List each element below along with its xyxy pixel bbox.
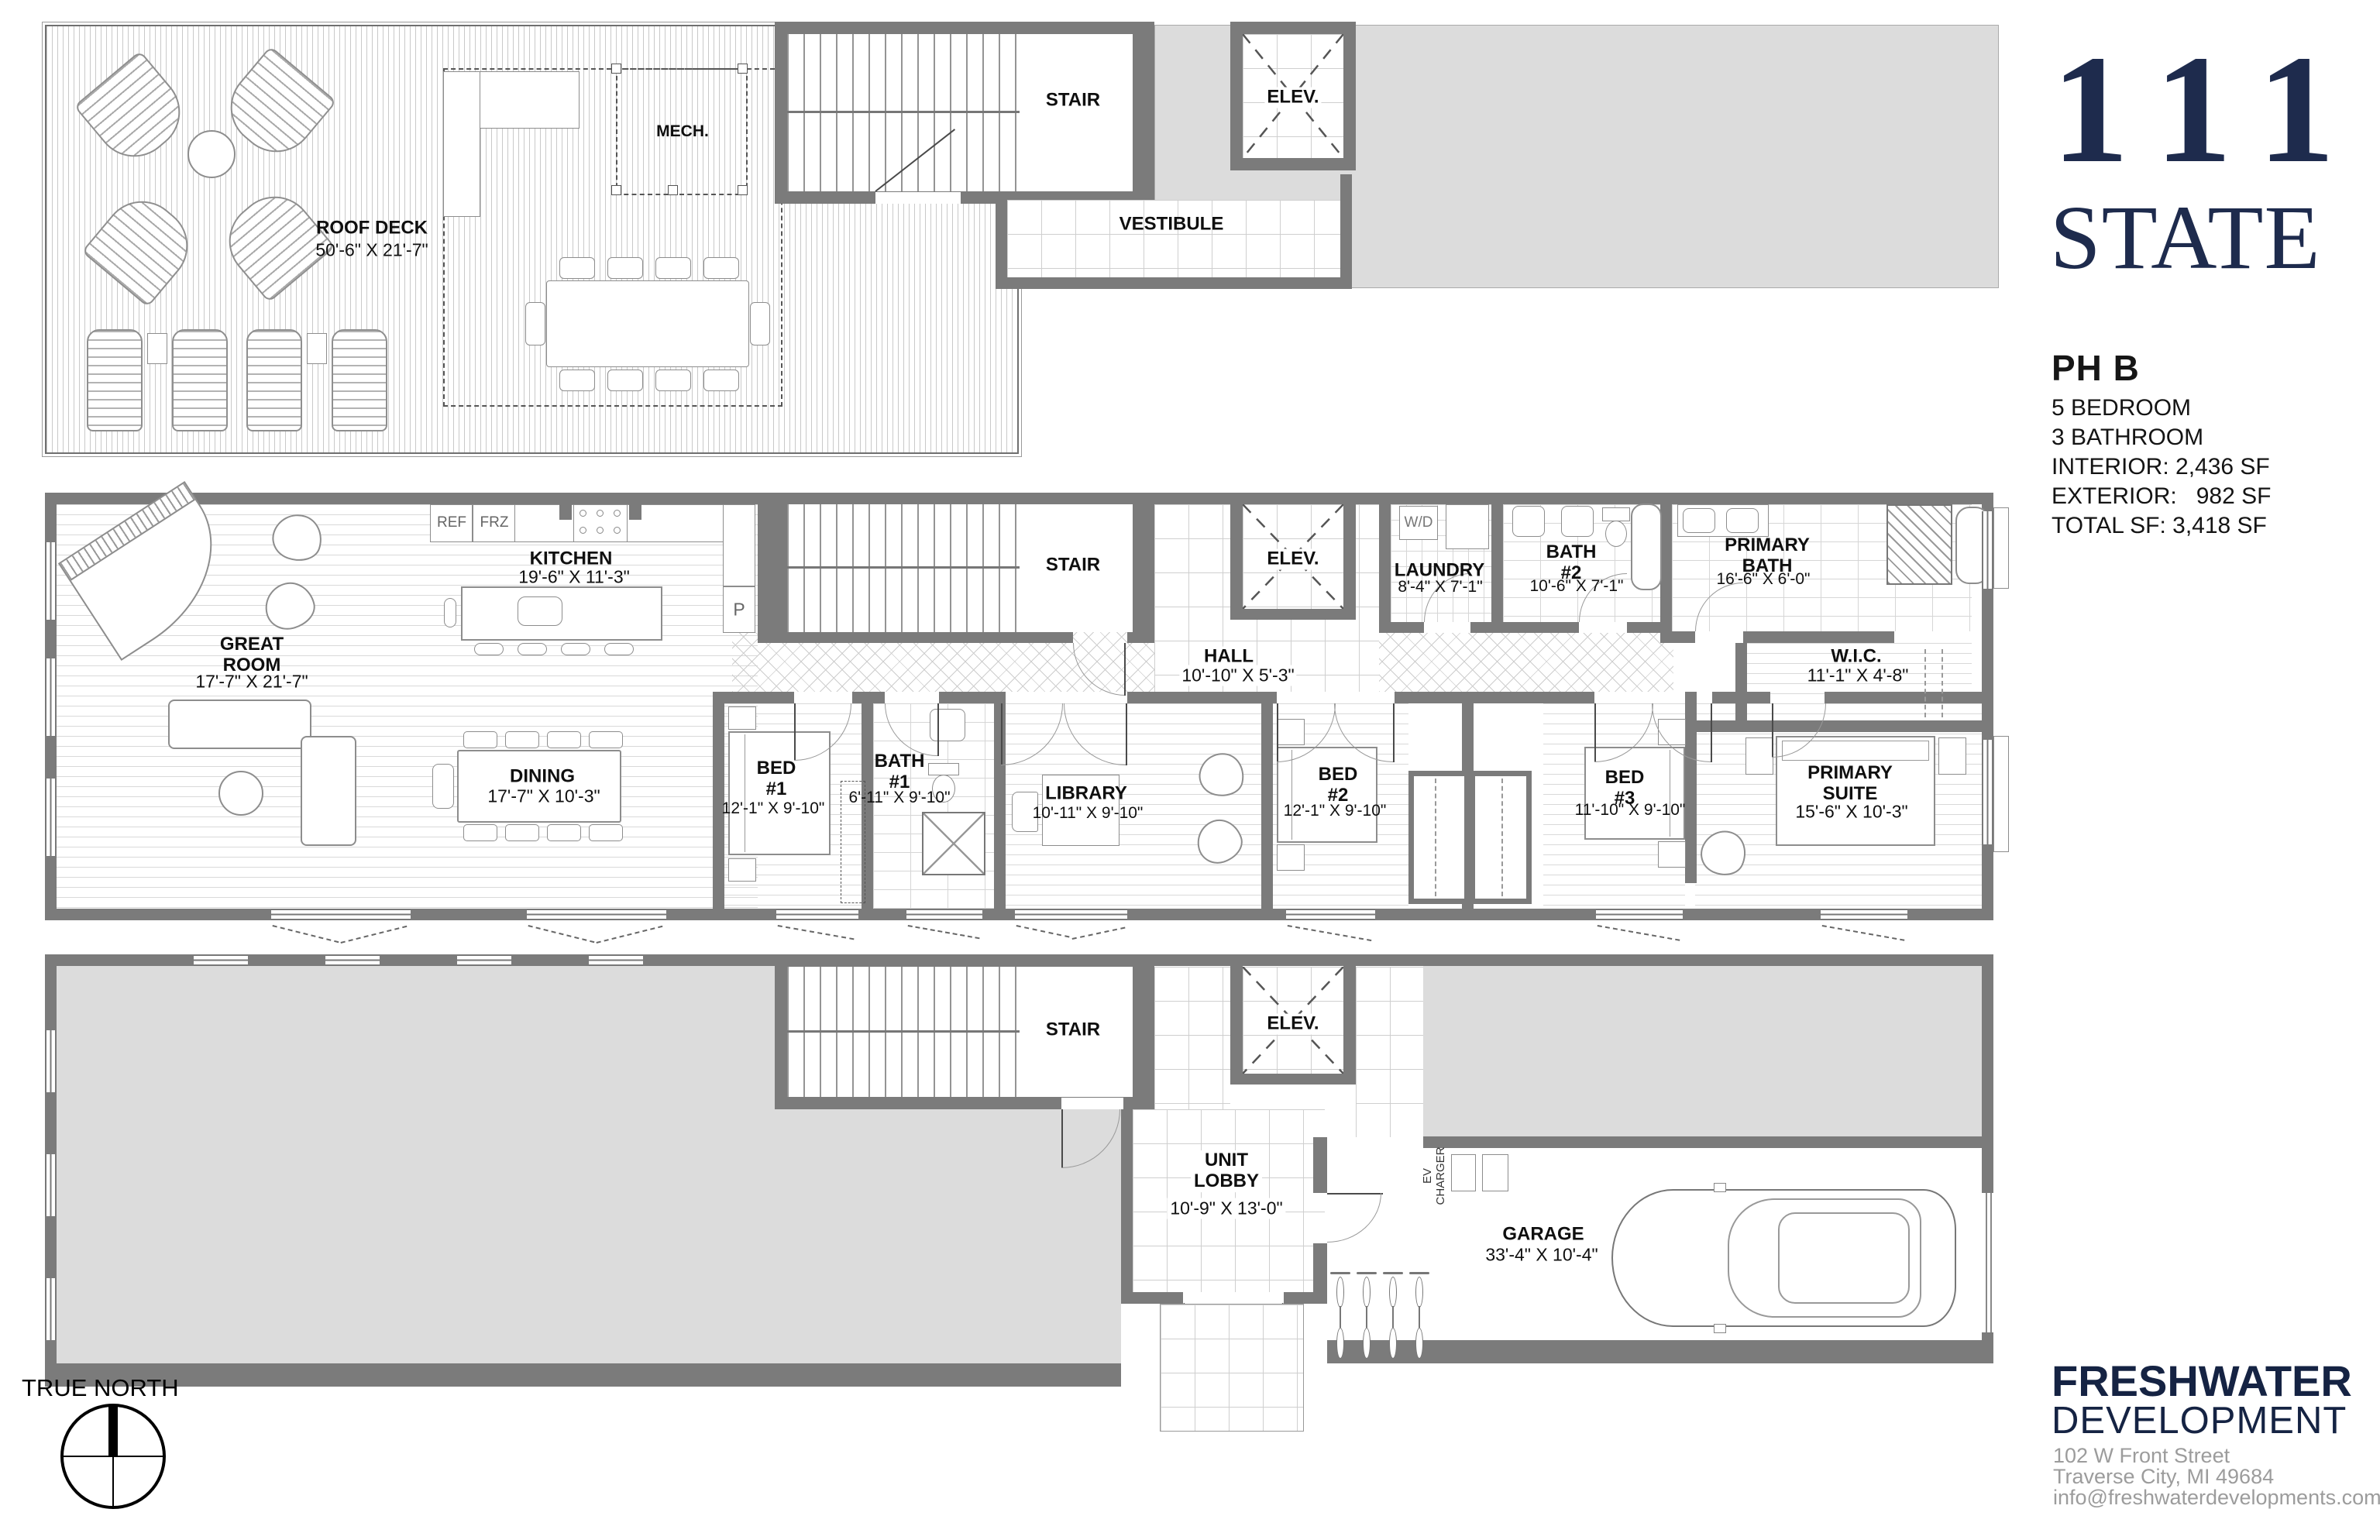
window [1982,511,1993,589]
deck-dining-chair [607,257,643,279]
car [1611,1189,1956,1327]
burner [597,510,604,517]
casement-swing [1288,925,1372,941]
deck-dining-chair [559,257,595,279]
burner [614,527,621,534]
deck-dining-chair [655,370,691,391]
bay-window [1993,736,2009,852]
bicycle [1356,1272,1377,1360]
nightstand [1658,841,1686,868]
mech-label: MECH. [656,122,709,141]
wic-label: W.I.C. [1831,647,1881,668]
deck-dining-table [546,280,749,367]
burner [597,527,604,534]
compass-north-bar [108,1405,118,1456]
dining-dims: 17'-7" X 10'-3" [487,786,600,807]
deck-dining-chair [703,257,739,279]
casement-swing [1072,926,1126,940]
entry-door-opening [1183,1292,1284,1304]
window [1596,909,1683,920]
wall-segment [1121,1109,1133,1292]
lobby-floor [1154,967,1230,1109]
window [1821,909,1907,920]
bed2-dims: 12'-1" X 9'-10" [1284,802,1387,820]
sink [1512,506,1545,537]
vestibule-floor [1007,200,1340,277]
bicycle [1408,1272,1430,1360]
window [45,779,57,856]
garage-dims: 33'-4" X 10'-4" [1485,1245,1598,1266]
post [668,185,678,195]
spec-line: INTERIOR: 2,436 SF [2052,452,2270,482]
library-label: LIBRARY [1045,784,1127,805]
garage-door-line [1986,1193,1987,1332]
hall-dims: 10'-10" X 5'-3" [1179,665,1296,686]
laundry-door-opening [1424,622,1470,633]
lobby-floor [1356,967,1423,1137]
nightstand [1938,737,1966,775]
window [271,909,411,920]
hall-label: HALL [1202,647,1256,668]
roof-deck-label: ROOF DECK [316,218,428,239]
wall-segment [1313,1243,1327,1292]
developer-name-line2: DEVELOPMENT [2052,1399,2347,1442]
elevator-wall [1343,493,1356,620]
nightstand [728,858,756,882]
post [738,64,748,74]
stair-rail [787,111,1020,113]
closet-rod [1941,649,1943,717]
primary-bath-door-opening [1695,631,1743,643]
nightstand [1745,737,1773,775]
deck-dining-chair [559,370,595,391]
dining-chair [463,824,497,841]
stair-label: STAIR [1046,1020,1100,1041]
elevator-wall [1230,609,1356,620]
toilet [1602,507,1630,521]
wall-segment [996,277,1352,289]
stair-rail [787,566,1020,569]
primary-suite-dims: 15'-6" X 10'-3" [1795,802,1907,823]
unit-lobby-dims: 10'-9" X 13'-0" [1167,1198,1285,1219]
elevator-label: ELEV. [1264,549,1321,570]
dining-chair [589,824,623,841]
bathtub [1631,504,1662,590]
nightstand [728,706,756,730]
bed1-dims: 12'-1" X 9'-10" [722,799,825,818]
deck-dining-chair [655,257,691,279]
elevator-label: ELEV. [1264,1014,1321,1035]
dining-chair [547,824,581,841]
adjacent-space [1423,966,1982,1136]
compass-label: TRUE NORTH [22,1374,179,1402]
casement-swing [597,926,663,944]
ev-charger-unit [1451,1154,1476,1191]
window [325,954,380,966]
wall-segment [1735,643,1747,732]
elevator-wall [1343,954,1356,1085]
stair-wall [1127,632,1154,643]
window [45,1154,57,1216]
bay-window [1993,507,2009,589]
wall-segment [1127,692,1277,703]
stair-wall [758,493,787,643]
sink [1683,508,1715,533]
wall-segment [1825,692,1982,703]
bath2-door-opening [1579,622,1627,633]
deck-dining-chair [750,302,770,345]
window [527,909,666,920]
toilet [928,763,959,775]
wall-bottom [45,1363,1121,1387]
elevator-wall [1230,1074,1356,1085]
door-leaf [1126,703,1127,765]
wall-segment [1672,720,1982,732]
bicycle [1329,1272,1351,1360]
ev-charger-unit [1482,1154,1508,1191]
casement-swing [273,925,339,943]
unit-lobby-label: UNIT LOBBY [1191,1150,1262,1192]
wall-segment [1261,692,1273,920]
frz-label: FRZ [480,514,509,531]
stair-label: STAIR [1046,555,1100,576]
window [1982,740,1993,844]
coffee-table [218,771,263,816]
wall-right [1982,1332,1993,1363]
closet-rod [1501,779,1503,896]
developer-email: info@freshwaterdevelopments.com [2053,1487,2380,1508]
tall-cabinet [723,504,755,586]
primary-suite-label: PRIMARY SUITE [1807,763,1893,805]
garage-top-wall [1423,1136,1993,1148]
window [1015,909,1127,920]
shower [1886,504,1952,585]
stair-door-opening [1061,1098,1123,1109]
dining-label: DINING [510,767,575,788]
window [1286,909,1375,920]
closet-rod [1435,779,1436,896]
deck-dining-chair [525,302,545,345]
stool [518,643,547,655]
stair-rail [787,1030,1020,1033]
unit-name: PH B [2052,347,2140,389]
casement-swing [1016,925,1070,938]
wall-segment [1379,504,1391,633]
closet-divider [1464,771,1475,904]
compass-south-line [112,1456,114,1507]
burner [580,527,586,534]
bicycle [1382,1272,1404,1360]
kitchen-dims: 19'-6" X 11'-3" [518,567,630,588]
developer-address-line2: Traverse City, MI 49684 [2053,1466,2274,1487]
deck-lounger [172,329,228,431]
casement-swing [908,925,980,939]
door-leaf [1711,703,1712,762]
wall-segment [939,692,1001,703]
window [45,1278,57,1340]
deck-side-table [307,333,327,364]
deck-lounger [87,329,143,431]
wall-top [45,493,1993,504]
dining-chair [589,731,623,748]
outdoor-counter [443,71,480,217]
window [589,954,643,966]
bath1-label: BATH #1 [875,751,925,793]
pillow [731,734,745,852]
window [45,542,57,620]
window [45,658,57,736]
vestibule-label: VESTIBULE [1119,215,1224,235]
bath1-dims: 6'-11" X 9'-10" [848,789,950,807]
logo-name: STATE [2050,192,2321,284]
wall-segment [1340,174,1352,289]
spec-line: 3 BATHROOM [2052,423,2203,452]
bed2-label: BED #2 [1319,765,1358,806]
laundry-counter [1446,504,1489,549]
pillow [1670,750,1682,837]
stair-door-opening [875,192,961,204]
window [45,1030,57,1092]
ev-charger-label: EV CHARGER [1422,1146,1448,1205]
wall-segment [1491,504,1503,633]
wall-segment [1462,692,1474,777]
great-room-dims: 17'-7" X 21'-7" [195,672,308,693]
wic-dims: 11'-1" X 4'-8" [1807,665,1909,686]
window [457,954,511,966]
elevator-wall [1230,954,1243,1085]
pantry-label: P [733,600,745,620]
stair-label: STAIR [1046,91,1100,112]
ref-label: REF [437,514,466,531]
deck-side-table [147,333,167,364]
door-leaf [937,703,939,756]
stool [474,643,504,655]
adjacent-space [57,966,775,1363]
garage-door-line [1990,1193,1992,1332]
counter-stub [629,504,641,520]
spec-line: EXTERIOR: 982 SF [2052,482,2271,511]
bed1-label: BED #1 [757,758,796,800]
pillow [1280,750,1292,840]
window [776,909,858,920]
door-leaf [1124,643,1126,696]
shower [922,812,985,875]
library-dims: 10'-11" X 9'-10" [1033,804,1144,823]
deck-dining-chair [607,370,643,391]
corridor-floor [1379,631,1673,692]
sink [1726,508,1759,533]
dining-chair [505,824,539,841]
great-room-label: GREAT ROOM [220,634,284,676]
spec-line: TOTAL SF: 3,418 SF [2052,511,2267,541]
casement-swing [528,925,595,943]
post [611,64,621,74]
window [906,909,982,920]
entry-stoop [1160,1304,1304,1432]
nightstand [1277,844,1305,871]
wall-segment [713,692,794,703]
wd-label: W/D [1405,514,1433,531]
sofa-chaise [301,736,356,846]
dining-chair [463,731,497,748]
logo-number: 111 [2052,33,2369,187]
deck-lounger [246,329,302,431]
counter-stub [559,504,572,520]
wall-right [1982,954,1993,1193]
stair-wall [1133,493,1154,643]
stool [561,643,590,655]
burner [614,510,621,517]
laundry-dims: 8'-4" X 7'-1" [1398,578,1482,596]
dining-chair [547,731,581,748]
dining-armchair [432,764,454,809]
primary-bath-dims: 16'-6" X 6'-0" [1717,570,1811,589]
post [738,185,748,195]
bed3-dims: 11'-10" X 9'-10" [1575,801,1686,820]
wall-segment [1395,692,1594,703]
casement-swing [1598,925,1680,941]
wall-segment [996,200,1007,289]
garage-label: GARAGE [1502,1225,1584,1246]
wall-segment [1313,1137,1327,1193]
deck-round-table [187,130,236,178]
developer-address-line1: 102 W Front Street [2053,1445,2230,1466]
casement-swing [341,926,408,944]
elevator-label: ELEV. [1264,88,1321,108]
sofa [168,700,311,749]
elevator-wall [1230,493,1243,620]
toilet-bowl [1605,521,1627,547]
deck-lounger [332,329,387,431]
floorplan-sheet: MECH. ROOF DECK 50'-6" X 21'-7" STAIR EL… [0,0,2380,1540]
stool [604,643,634,655]
burner [580,510,586,517]
deck-dining-chair [703,370,739,391]
window [194,954,248,966]
spec-line: 5 BEDROOM [2052,394,2191,423]
dining-chair [505,731,539,748]
casement-swing [778,925,855,940]
roof-deck-dims: 50'-6" X 21'-7" [315,240,428,261]
stool [444,598,456,627]
door-leaf [1393,703,1395,762]
closet-rod [1924,649,1926,717]
bath2-dims: 10'-6" X 7'-1" [1530,577,1624,596]
sink [1561,506,1594,537]
casement-swing [1822,925,1905,941]
island-sink [518,596,562,626]
stair-wall [775,632,1073,643]
post [611,185,621,195]
